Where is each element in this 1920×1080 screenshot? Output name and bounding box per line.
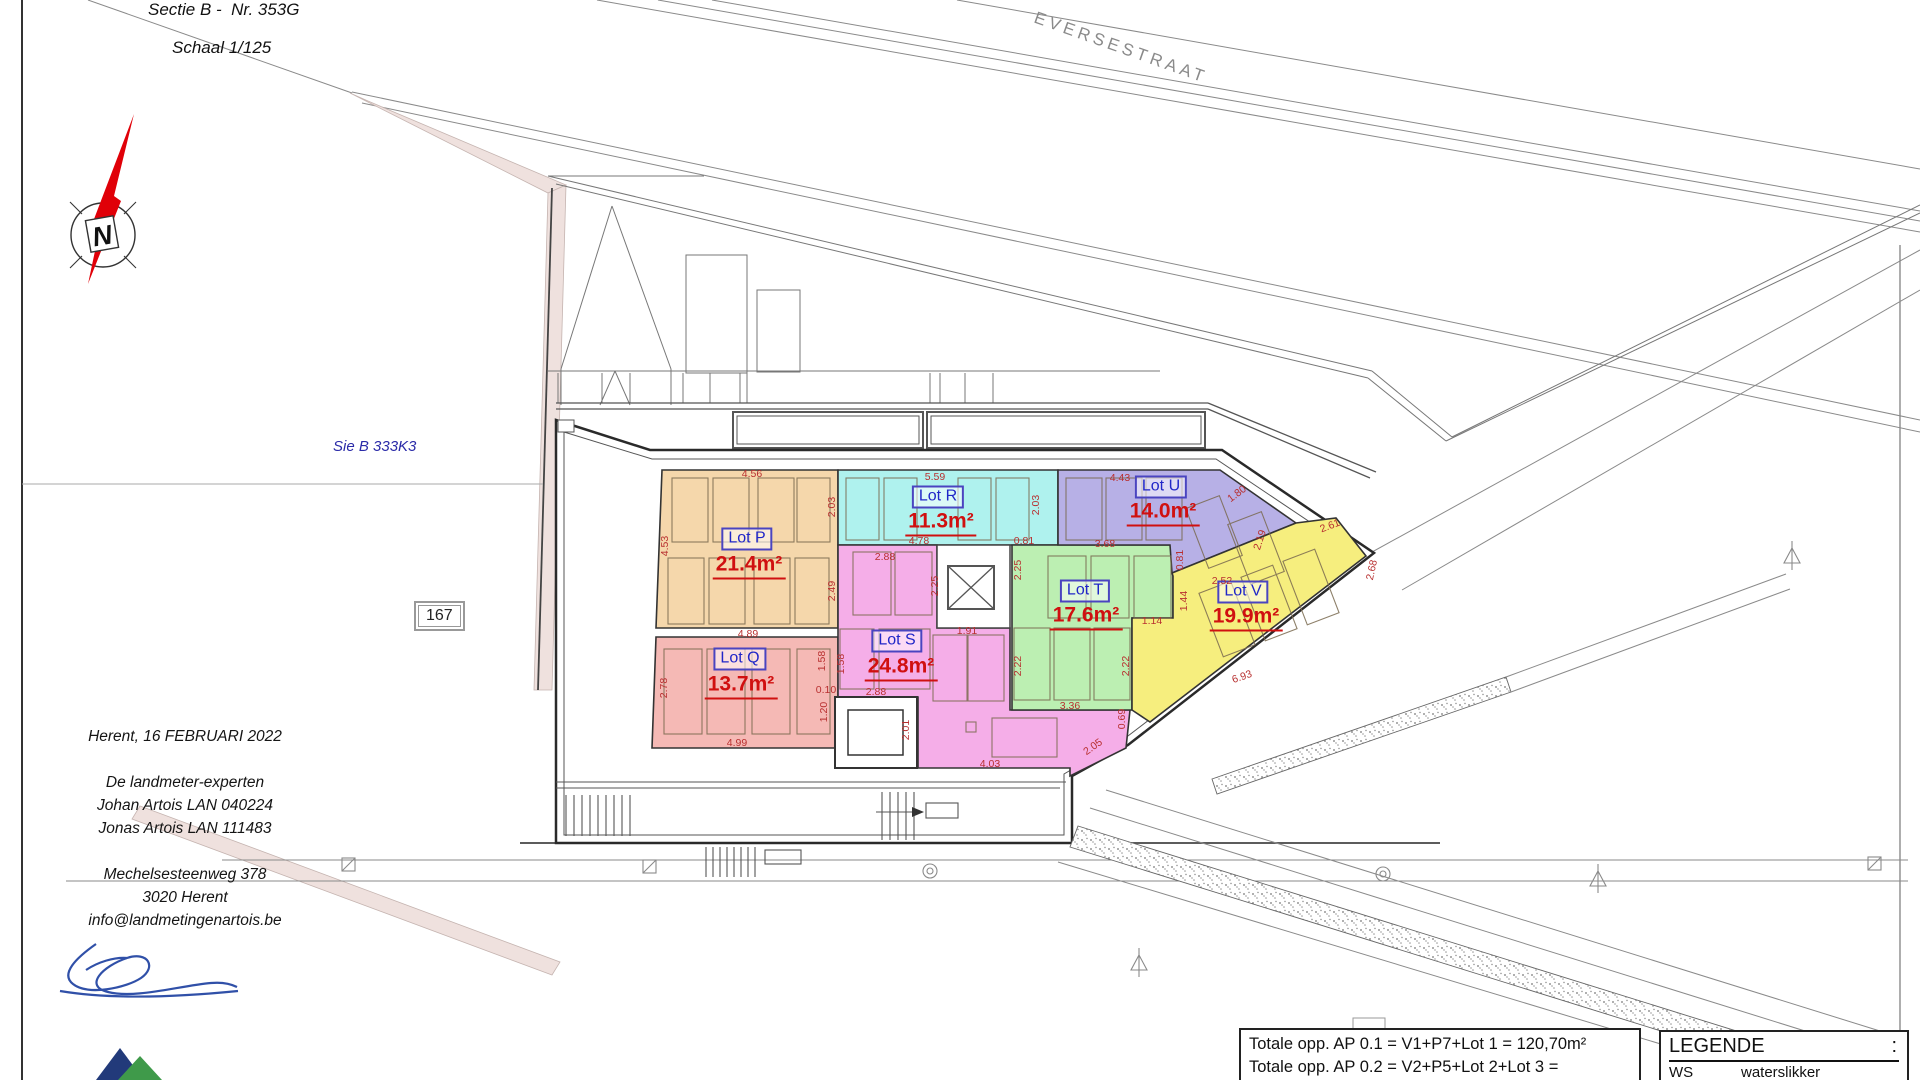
- parcel-number-box: 167: [414, 601, 465, 631]
- address-line: 3020 Herent: [40, 886, 330, 909]
- address-line: info@landmetingenartois.be: [40, 909, 330, 932]
- legend-row: WS waterslikker: [1669, 1062, 1899, 1080]
- section-title: Sectie B - Nr. 353G: [148, 0, 299, 20]
- parcel-number: 167: [418, 605, 461, 627]
- lot-p-region: [656, 470, 838, 628]
- wall-notch: [558, 420, 574, 432]
- address-line: De landmeter-experten: [40, 771, 330, 794]
- address-line: Herent, 16 FEBRUARI 2022: [40, 725, 330, 748]
- address-line: Jonas Artois LAN 111483: [40, 817, 330, 840]
- logo-fragment: [96, 1048, 162, 1080]
- surveyor-address-block: Herent, 16 FEBRUARI 2022 De landmeter-ex…: [40, 725, 330, 932]
- legend-title: LEGENDE: [1669, 1035, 1765, 1058]
- elevator-shaft: [937, 545, 1010, 628]
- address-line: Johan Artois LAN 040224: [40, 794, 330, 817]
- address-line: [40, 840, 330, 863]
- legend-code: WS: [1669, 1063, 1741, 1080]
- address-line: Mechelsesteenweg 378: [40, 863, 330, 886]
- lot-r-region: [838, 470, 1058, 545]
- address-line: [40, 748, 330, 771]
- legend-title-row: LEGENDE :: [1669, 1034, 1899, 1062]
- upper-building-lines: [548, 176, 1920, 441]
- legend-box: LEGENDE : WS waterslikker BS bezoeksscho…: [1659, 1030, 1909, 1080]
- parcel-note: Sie B 333K3: [333, 438, 416, 455]
- totals-box: Totale opp. AP 0.1 = V1+P7+Lot 1 = 120,7…: [1239, 1028, 1641, 1080]
- north-arrow-compass: N: [70, 114, 136, 284]
- stair-shaft: [835, 697, 917, 768]
- right-street-lines: [1363, 250, 1920, 590]
- street-lines: [88, 0, 1920, 432]
- legend-colon: :: [1891, 1035, 1897, 1058]
- scale-label: Schaal 1/125: [172, 38, 271, 58]
- signature-scribble: [60, 944, 238, 996]
- survey-plan-page: N Sectie B - Nr. 353G Schaal 1/125 EVERS…: [0, 0, 1920, 1080]
- totals-line: Totale opp. AP 0.1 = V1+P7+Lot 1 = 120,7…: [1249, 1033, 1631, 1056]
- totals-line: Totale opp. AP 0.2 = V2+P5+Lot 2+Lot 3 =…: [1249, 1056, 1631, 1080]
- legend-desc: waterslikker: [1741, 1063, 1820, 1080]
